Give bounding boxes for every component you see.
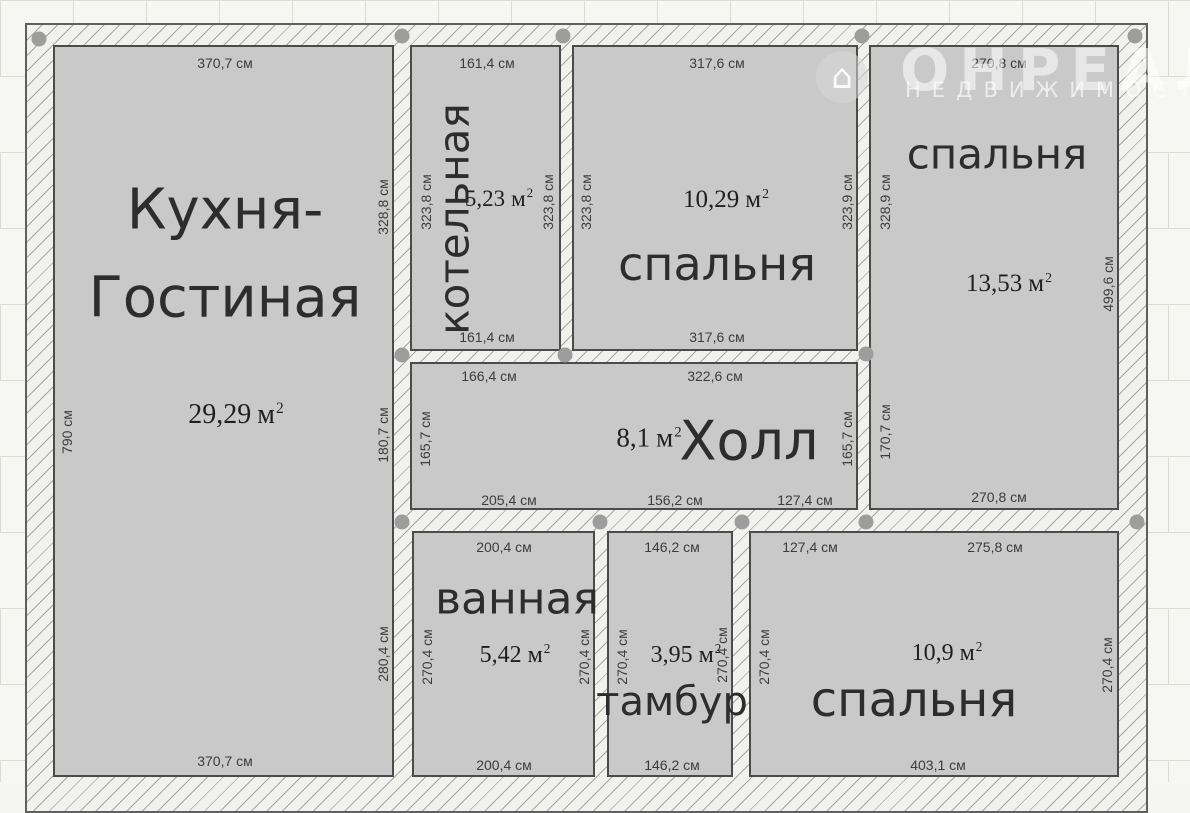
area-label: 5,42м2 <box>480 641 551 669</box>
junction-dot <box>1128 29 1143 44</box>
room-name: тамбур <box>596 679 748 725</box>
dim-right: 499,6 см <box>1100 256 1116 312</box>
junction-dot <box>855 29 870 44</box>
dim-left: 323,8 см <box>418 174 434 230</box>
dim-left: 323,8 см <box>578 174 594 230</box>
dim-bottom: 270,8 см <box>971 489 1027 505</box>
room-bedroom-right: 270,8 см спальня 328,9 см 170,7 см 13,53… <box>869 45 1119 510</box>
room-name: Холл <box>679 410 818 473</box>
dim-right: 323,8 см <box>540 174 556 230</box>
area-label: 5,23м2 <box>465 186 533 212</box>
dim-bottom-1: 205,4 см <box>481 492 537 508</box>
dim-right-lower: 280,4 см <box>375 626 391 682</box>
area-label: 3,95м2 <box>651 641 722 669</box>
dim-bottom: 370,7 см <box>197 753 253 769</box>
room-name: спальня <box>618 237 816 291</box>
dim-top: 200,4 см <box>476 539 532 555</box>
dim-top: 161,4 см <box>459 55 515 71</box>
dim-bottom: 161,4 см <box>459 329 515 345</box>
dim-left: 270,4 см <box>756 629 772 685</box>
room-name: ванная <box>435 574 599 625</box>
dim-bottom: 403,1 см <box>910 757 966 773</box>
area-label: 8,1м2 <box>616 423 681 454</box>
dim-top-left: 166,4 см <box>461 368 517 384</box>
dim-top: 370,7 см <box>197 55 253 71</box>
room-name: спальня <box>907 130 1088 179</box>
room-boiler: 161,4 см 323,8 см 323,8 см котельная 5,2… <box>410 45 561 351</box>
room-bedroom-top: 317,6 см 323,8 см 323,9 см 10,29м2 спаль… <box>572 45 858 351</box>
room-bathroom: 200,4 см ванная 270,4 см 5,42м2 270,4 см… <box>412 531 595 777</box>
junction-dot <box>556 29 571 44</box>
junction-dot <box>395 515 410 530</box>
dim-bottom: 200,4 см <box>476 757 532 773</box>
dim-top: 317,6 см <box>689 55 745 71</box>
room-kitchen-living: 370,7 см Кухня- Гостиная 29,29м2 790 см … <box>53 45 394 777</box>
dim-top-right: 275,8 см <box>967 539 1023 555</box>
dim-top: 146,2 см <box>644 539 700 555</box>
dim-top-right: 322,6 см <box>687 368 743 384</box>
junction-dot <box>395 29 410 44</box>
room-name: Гостиная <box>89 266 362 331</box>
dim-right-upper: 328,8 см <box>375 179 391 235</box>
dim-bottom-3: 127,4 см <box>777 492 833 508</box>
room-name: спальня <box>811 672 1017 728</box>
room-name: Кухня- <box>127 178 324 243</box>
junction-dot <box>859 515 874 530</box>
dim-left: 270,4 см <box>419 629 435 685</box>
dim-right: 165,7 см <box>839 411 855 467</box>
junction-dot <box>558 348 573 363</box>
dim-right: 270,4 см <box>714 627 730 683</box>
junction-dot <box>32 32 47 47</box>
junction-dot <box>1130 515 1145 530</box>
dim-left: 270,4 см <box>614 629 630 685</box>
dim-bottom: 317,6 см <box>689 329 745 345</box>
dim-right: 270,4 см <box>1099 637 1115 693</box>
dim-bottom: 146,2 см <box>644 757 700 773</box>
dim-left: 165,7 см <box>417 411 433 467</box>
room-vestibule: 146,2 см 270,4 см 3,95м2 270,4 см тамбур… <box>607 531 733 777</box>
area-label: 29,29м2 <box>188 399 283 431</box>
dim-left-upper: 328,9 см <box>877 174 893 230</box>
room-hall: 166,4 см 322,6 см 165,7 см 8,1м2 Холл 16… <box>410 362 858 510</box>
area-label: 10,9м2 <box>912 639 983 667</box>
dim-right: 270,4 см <box>576 629 592 685</box>
junction-dot <box>735 515 750 530</box>
dim-top: 270,8 см <box>971 55 1027 71</box>
dim-top-left: 127,4 см <box>782 539 838 555</box>
room-bedroom-bottom: 127,4 см 275,8 см 270,4 см 10,9м2 270,4 … <box>749 531 1119 777</box>
area-label: 10,29м2 <box>683 186 769 214</box>
junction-dot <box>593 515 608 530</box>
dim-right: 323,9 см <box>839 174 855 230</box>
junction-dot <box>859 347 874 362</box>
room-name: котельная <box>430 103 479 334</box>
floor-plan: 370,7 см Кухня- Гостиная 29,29м2 790 см … <box>25 23 1148 813</box>
dim-left-lower: 170,7 см <box>877 404 893 460</box>
dim-bottom-2: 156,2 см <box>647 492 703 508</box>
dim-right-middle: 180,7 см <box>375 407 391 463</box>
dim-left: 790 см <box>59 410 75 454</box>
junction-dot <box>395 348 410 363</box>
area-label: 13,53м2 <box>966 270 1052 298</box>
